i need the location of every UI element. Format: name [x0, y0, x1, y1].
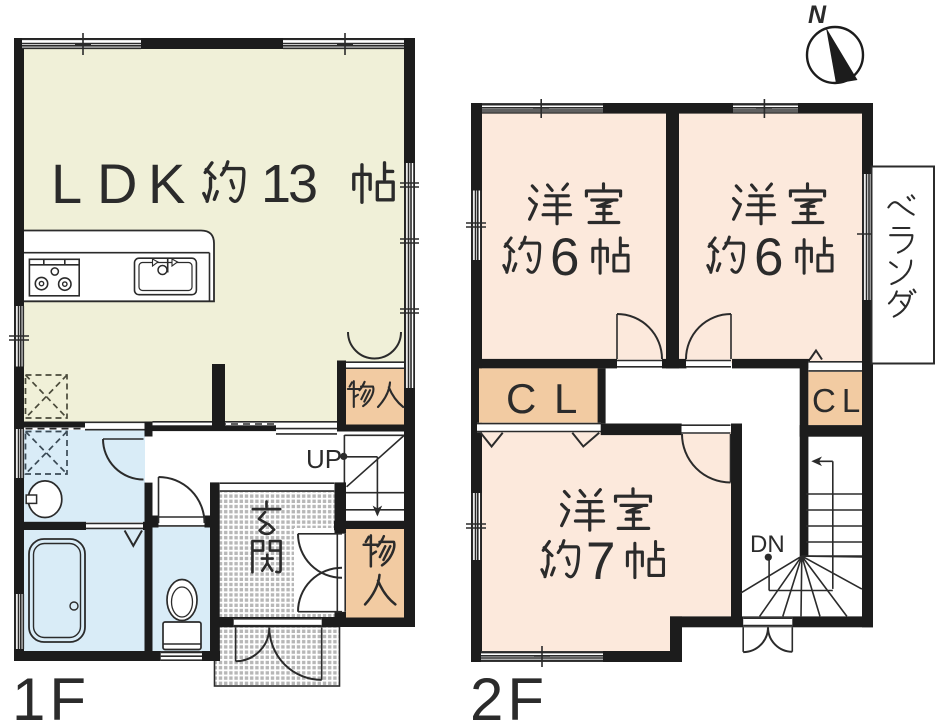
- svg-text:CL: CL: [812, 382, 866, 419]
- svg-text:UP: UP: [306, 444, 342, 474]
- svg-text:L: L: [51, 152, 82, 215]
- svg-text:C L: C L: [506, 375, 580, 422]
- svg-text:6: 6: [550, 228, 579, 287]
- svg-text:2F: 2F: [470, 666, 548, 726]
- svg-text:6: 6: [754, 228, 783, 287]
- svg-text:N: N: [808, 1, 827, 29]
- svg-text:K: K: [148, 152, 185, 215]
- svg-text:7: 7: [586, 532, 615, 591]
- svg-text:1F: 1F: [12, 666, 90, 726]
- svg-text:DN: DN: [750, 531, 785, 558]
- svg-text:13: 13: [261, 154, 316, 214]
- svg-text:D: D: [97, 152, 137, 215]
